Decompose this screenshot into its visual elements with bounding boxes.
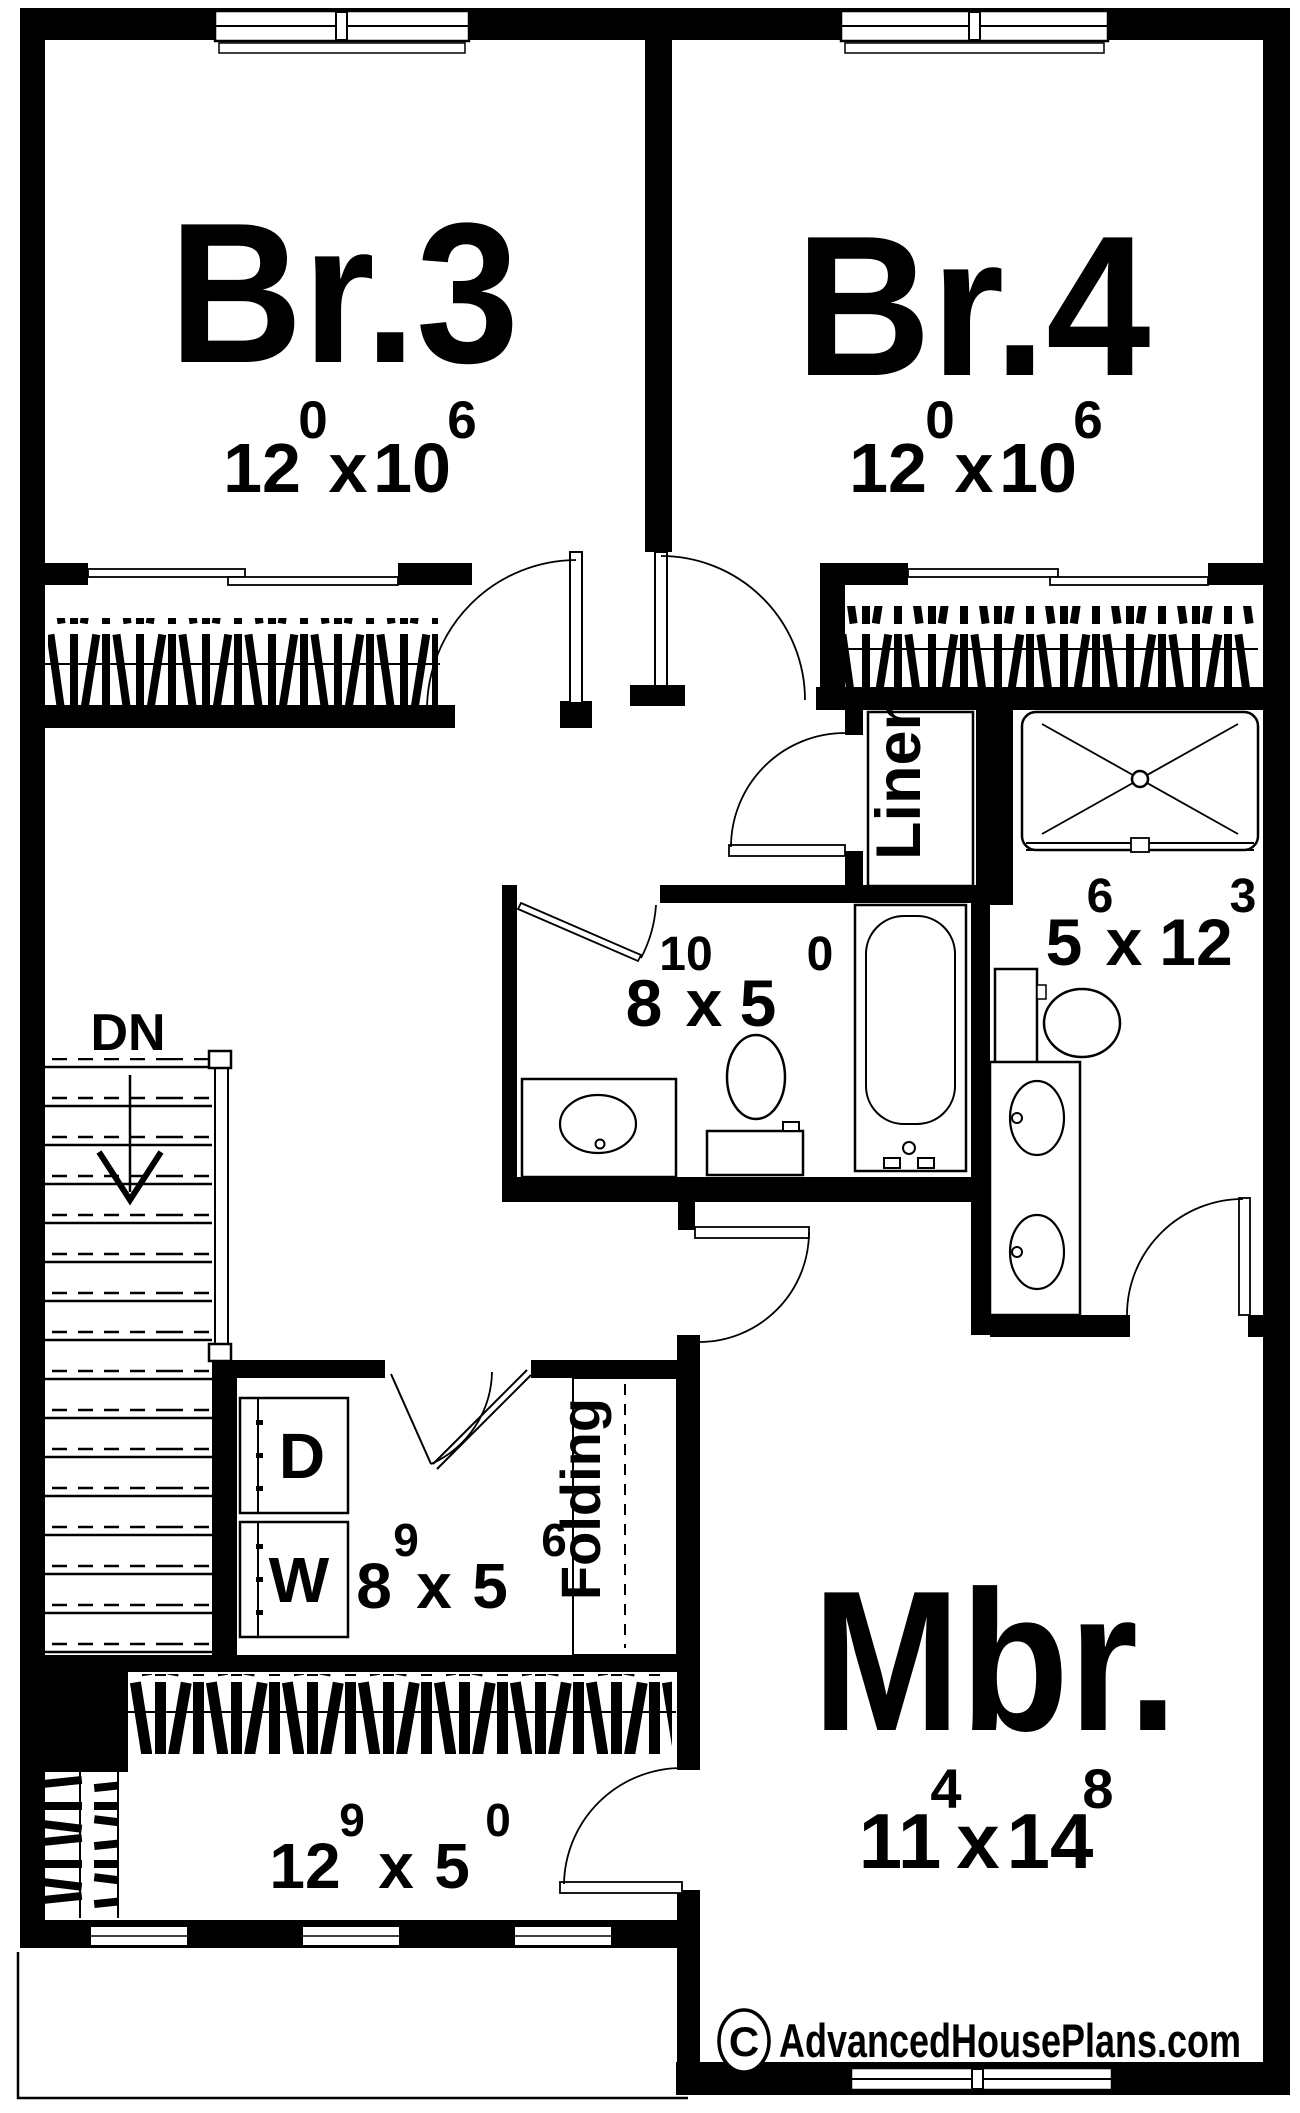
br3-label: Br.3 <box>169 182 519 405</box>
bathhall-door-leaf <box>729 845 845 856</box>
closet-dim-b: 5 <box>434 1830 470 1902</box>
bypass-door-panel <box>908 569 1058 577</box>
laundry-dim-a: 8 <box>356 1550 392 1622</box>
br4-dim-b-sup: 6 <box>1073 391 1102 450</box>
hallbath-dim-b: 5 <box>740 966 777 1040</box>
stairs-dn-label: DN <box>90 1004 165 1062</box>
masterbath-dim-x: x <box>1106 905 1143 979</box>
shower-door-handle <box>1131 838 1149 852</box>
dryer-label: D <box>279 1420 325 1492</box>
laundry-dim-b: 5 <box>472 1550 508 1622</box>
tub-handle <box>918 1158 934 1168</box>
wall-br3-closet-bottom <box>20 705 455 728</box>
wall-exterior-right <box>1263 8 1290 2095</box>
sink-drain <box>596 1140 605 1149</box>
wall-hall-stub <box>845 689 863 735</box>
br3-dim-b-sup: 6 <box>447 391 476 450</box>
floor-plan-sheet: Br.3 12 0 x 10 6 Br.4 12 0 x 10 6 8 10 x… <box>0 0 1300 2108</box>
bypass-door-panel <box>228 577 398 585</box>
hallbath-dim-a: 8 <box>626 966 663 1040</box>
br4-label: Br.4 <box>796 195 1151 418</box>
sink-drain <box>1012 1247 1022 1257</box>
br4-dim-x: x <box>955 429 994 507</box>
br3-dim-b: 10 <box>373 429 451 507</box>
watermark: C AdvancedHousePlans.com <box>719 2010 1241 2072</box>
closet-dim-b-sup: 0 <box>485 1794 511 1846</box>
wall-br3-closet <box>45 563 88 585</box>
wall-hallbath-top <box>660 885 1013 903</box>
mbr-dim-b-sup: 8 <box>1082 1757 1113 1820</box>
wall-door-threshold <box>560 701 592 728</box>
wall-masterbath-bottom-stub <box>1248 1315 1263 1337</box>
bypass-door-panel <box>88 569 245 577</box>
hallbath-vanity <box>522 1079 676 1177</box>
wall-corner-mass <box>40 1670 128 1772</box>
wall-laundry-top <box>233 1360 385 1378</box>
wall-br3-br4-divider <box>645 40 672 552</box>
watermark-text: AdvancedHousePlans.com <box>779 2014 1241 2067</box>
closet-dim-a-sup: 9 <box>339 1794 365 1846</box>
mbr-dim-x: x <box>956 1797 999 1885</box>
walkin-closet-hatch-top <box>130 1674 672 1754</box>
laundry-dim-a-sup: 9 <box>393 1514 419 1566</box>
window-mbr <box>851 2068 1112 2090</box>
wall-door-threshold <box>630 685 685 706</box>
masterbath-door-leaf <box>1239 1198 1250 1315</box>
br3-dim-x: x <box>329 429 368 507</box>
wall-hallbath-left <box>502 885 517 1202</box>
floor-plan: Br.3 12 0 x 10 6 Br.4 12 0 x 10 6 8 10 x… <box>0 0 1300 2108</box>
wall-stair-right <box>212 1360 237 1670</box>
closet-dim-a: 12 <box>269 1830 340 1902</box>
br4-dim-a-sup: 0 <box>925 391 954 450</box>
window-br4 <box>841 11 1108 53</box>
newel-post <box>209 1051 231 1068</box>
wall-br4-closet <box>1208 563 1265 585</box>
br3-door-leaf <box>570 552 582 703</box>
stairs <box>45 1058 212 1655</box>
wall-linen-right <box>976 687 1013 905</box>
shower-drain <box>1132 771 1148 787</box>
br4-dim-a: 12 <box>849 429 927 507</box>
wall-hallbath-bottom <box>502 1177 990 1202</box>
br3-closet-hatch <box>48 618 438 706</box>
window-br3 <box>215 11 469 53</box>
sink-drain <box>1012 1113 1022 1123</box>
wall-mbr-left <box>677 1335 700 1770</box>
closet-door-leaf <box>560 1882 682 1893</box>
laundry-dim-x: x <box>416 1550 452 1622</box>
mbr-hall-door-leaf <box>695 1227 809 1238</box>
hallbath-dim-x: x <box>686 966 723 1040</box>
folding-label: Folding <box>549 1398 612 1600</box>
wall-hall-mbr-jamb <box>678 1202 695 1230</box>
masterbath-dim-b-sup: 3 <box>1230 870 1257 923</box>
mbr-dim-a: 11 <box>859 1797 941 1885</box>
masterbath-vanity <box>990 1062 1080 1315</box>
tub-faucet <box>903 1142 915 1154</box>
wall-laundry-top <box>531 1360 680 1378</box>
br4-dim-b: 10 <box>999 429 1077 507</box>
tub-handle <box>884 1158 900 1168</box>
newel-post <box>209 1344 231 1361</box>
hallbath-dim-b-sup: 0 <box>807 928 834 981</box>
br4-door-leaf <box>655 552 667 686</box>
railing <box>215 1055 228 1362</box>
copyright-symbol: C <box>729 2018 759 2065</box>
wall-br3-closet <box>398 563 472 585</box>
mbr-label: Mbr. <box>813 1550 1178 1773</box>
windows-closet-bottom <box>90 1926 612 1946</box>
mbr-dim-b: 14 <box>1007 1797 1094 1885</box>
stair-treads <box>45 1058 212 1655</box>
washer-label: W <box>269 1544 330 1616</box>
masterbath-dim-a: 5 <box>1046 905 1083 979</box>
bathtub <box>855 905 966 1171</box>
linen-label: Linen <box>864 692 934 860</box>
wall-mbr-left <box>677 1890 700 2095</box>
bypass-door-panel <box>1050 577 1208 585</box>
closet-dim-x: x <box>378 1830 414 1902</box>
wall-laundry-bottom <box>20 1655 700 1672</box>
masterbath-dim-b: 12 <box>1159 905 1232 979</box>
wall-hallbath-right <box>971 885 990 1335</box>
wall-masterbath-bottom <box>990 1315 1130 1337</box>
shower <box>1022 712 1258 852</box>
br3-dim-a-sup: 0 <box>298 391 327 450</box>
br3-dim-a: 12 <box>223 429 301 507</box>
